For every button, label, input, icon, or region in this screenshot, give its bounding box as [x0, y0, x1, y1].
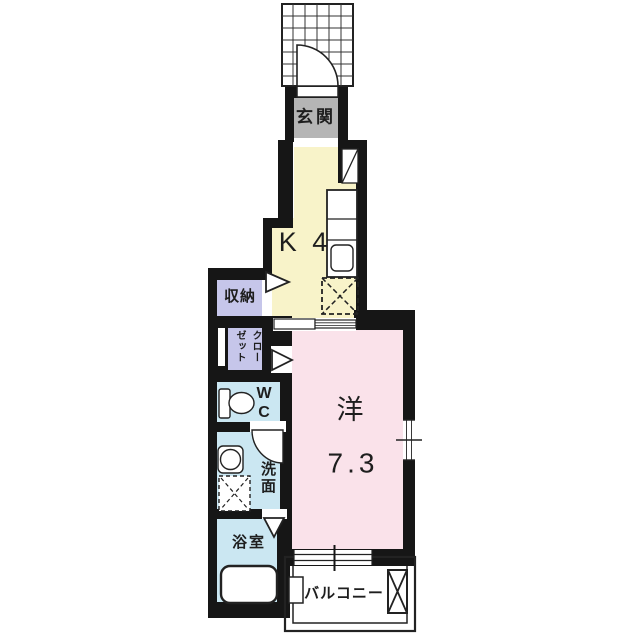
kitchen-counter-icon — [327, 190, 357, 277]
closet-label: クローゼット — [229, 330, 263, 370]
entrance-door-icon — [297, 86, 338, 97]
washroom-label: 洗面 — [257, 461, 278, 515]
balcony-partition-icon — [289, 577, 303, 603]
washbasin-icon — [218, 446, 243, 473]
bathtub-icon — [221, 566, 277, 603]
porch-tiles-icon — [282, 4, 353, 86]
wall-gap-strip — [218, 328, 225, 366]
washing-machine-icon — [219, 476, 250, 511]
bathroom-label: 浴室 — [232, 535, 266, 552]
kitchen-sliding-door-icon — [273, 318, 356, 331]
wc-label: W C — [256, 384, 271, 422]
floor-plan: 玄関 K 4 収納 クローゼット W C 洗面 浴室 洋 7.3 バルコニー — [0, 0, 640, 640]
kitchen-label: K 4 — [279, 228, 332, 258]
western-room-size: 7.3 — [328, 449, 379, 480]
western-room-floor — [292, 330, 403, 550]
floor-plan-drawing — [0, 0, 640, 640]
open-door-leaf-icon — [342, 149, 358, 183]
entrance-label: 玄関 — [296, 109, 336, 128]
room-doorway-arrow-icon — [271, 346, 292, 373]
entrance-step — [294, 138, 338, 147]
storage-label: 収納 — [224, 289, 256, 306]
balcony-label: バルコニー — [304, 586, 384, 603]
western-room-label: 洋 — [337, 396, 364, 426]
